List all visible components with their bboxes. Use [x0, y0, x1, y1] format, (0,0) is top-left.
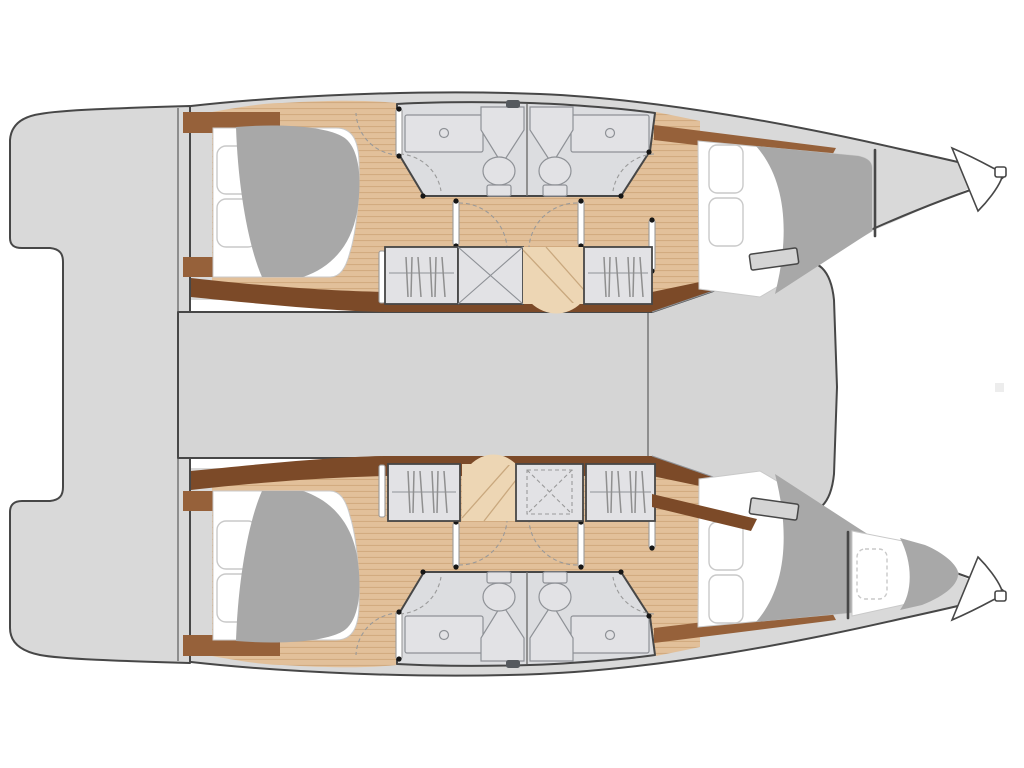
catamaran-floor-plan-page	[0, 0, 1024, 768]
forepeak-pillow	[857, 549, 887, 599]
watermark-dot	[995, 383, 1004, 392]
entry-steps	[462, 464, 516, 521]
aft-platform	[10, 106, 190, 663]
boat-floor-plan	[0, 0, 1024, 768]
